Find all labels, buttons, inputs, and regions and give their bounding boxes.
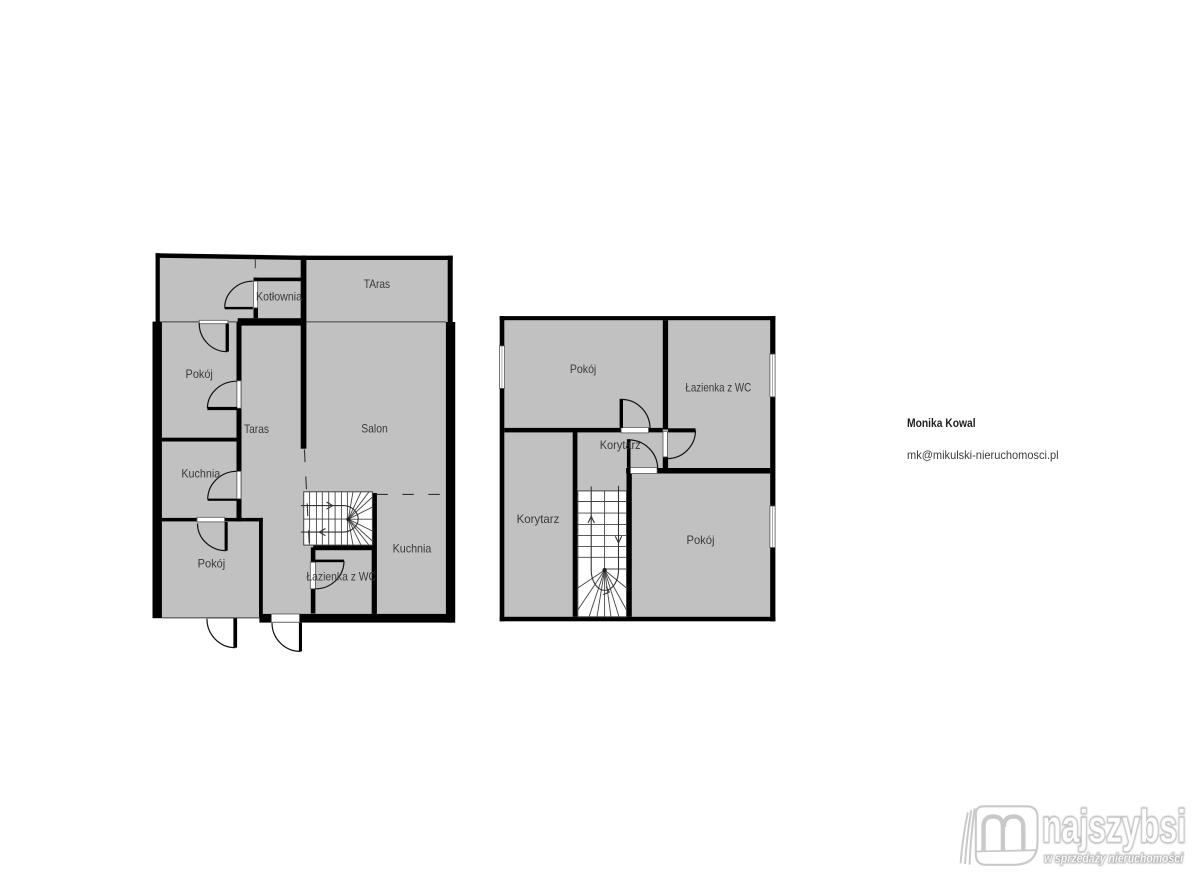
svg-text:Korytarz: Korytarz bbox=[517, 512, 560, 526]
svg-text:Łazienka z WC: Łazienka z WC bbox=[685, 381, 751, 395]
svg-text:Kuchnia: Kuchnia bbox=[181, 467, 220, 481]
svg-text:najszybsi: najszybsi bbox=[1042, 800, 1186, 852]
svg-text:w sprzedaży nieruchomości: w sprzedaży nieruchomości bbox=[1044, 851, 1183, 866]
svg-text:Łazienka z WC: Łazienka z WC bbox=[306, 570, 376, 584]
svg-text:Pokój: Pokój bbox=[186, 367, 213, 381]
svg-text:mk@mikulski-nieruchomosci.pl: mk@mikulski-nieruchomosci.pl bbox=[907, 448, 1059, 462]
svg-text:Korytarz: Korytarz bbox=[600, 438, 641, 452]
svg-text:Pokój: Pokój bbox=[198, 557, 226, 571]
svg-text:Kuchnia: Kuchnia bbox=[393, 542, 432, 556]
svg-text:Salon: Salon bbox=[361, 422, 388, 436]
svg-text:Kotłownia: Kotłownia bbox=[256, 289, 302, 303]
svg-text:Taras: Taras bbox=[244, 422, 269, 436]
svg-text:TAras: TAras bbox=[364, 277, 390, 291]
svg-text:Pokój: Pokój bbox=[570, 362, 596, 376]
svg-text:Monika Kowal: Monika Kowal bbox=[907, 416, 976, 430]
svg-text:Pokój: Pokój bbox=[687, 533, 715, 547]
